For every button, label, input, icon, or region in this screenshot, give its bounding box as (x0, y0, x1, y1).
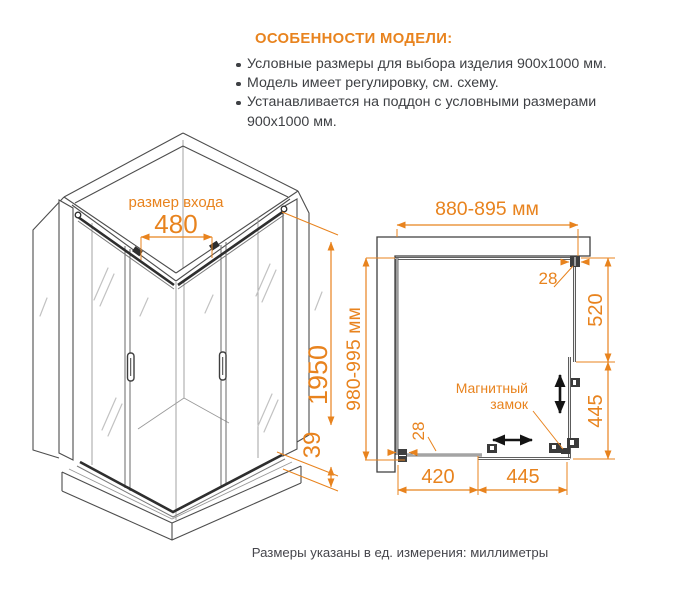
top-profile-dimension: 28 (539, 262, 589, 288)
magnet-label-line1: Магнитный (456, 380, 528, 396)
feature-item: Модель имеет регулировку, см. схему. (233, 74, 637, 93)
bottom-fixed-value: 420 (421, 466, 454, 488)
magnet-label: Магнитный замок (456, 380, 563, 449)
door-handle-icon (220, 352, 227, 380)
units-note: Размеры указаны в ед. измерения: миллиме… (252, 545, 548, 560)
bottom-profile-value: 28 (409, 422, 428, 441)
right-fixed-value: 520 (585, 293, 607, 326)
iso-glass-panels (92, 217, 258, 520)
iso-interior-lines (138, 140, 229, 429)
features-heading: ОСОБЕННОСТИ МОДЕЛИ: (255, 31, 637, 47)
feature-item: Условные размеры для выбора изделия 900x… (233, 55, 637, 74)
iso-tray (62, 455, 301, 540)
top-profile-value: 28 (539, 269, 558, 288)
bottom-dimensions: 420 445 (398, 456, 567, 495)
width-value: 880-895 мм (435, 198, 539, 220)
bottom-door-value: 445 (506, 466, 539, 488)
magnet-label-line2: замок (490, 396, 529, 412)
iso-diagram: размер входа 480 1950 39 (20, 120, 350, 590)
door-handle-icon (128, 353, 135, 381)
depth-value: 980-995 мм (343, 307, 365, 411)
right-side-dimensions: 520 445 (573, 258, 615, 459)
plan-diagram: 880-895 мм 980-995 мм 520 445 420 445 (325, 185, 675, 515)
page: ОСОБЕННОСТИ МОДЕЛИ: Условные размеры для… (0, 0, 675, 600)
glass-reflection-marks (40, 264, 322, 436)
tray-height-value: 39 (299, 432, 326, 459)
iso-roof-walls (33, 133, 309, 458)
features-section: ОСОБЕННОСТИ МОДЕЛИ: Условные размеры для… (233, 31, 637, 132)
right-door-value: 445 (585, 394, 607, 427)
entrance-width-value: 480 (154, 209, 197, 239)
